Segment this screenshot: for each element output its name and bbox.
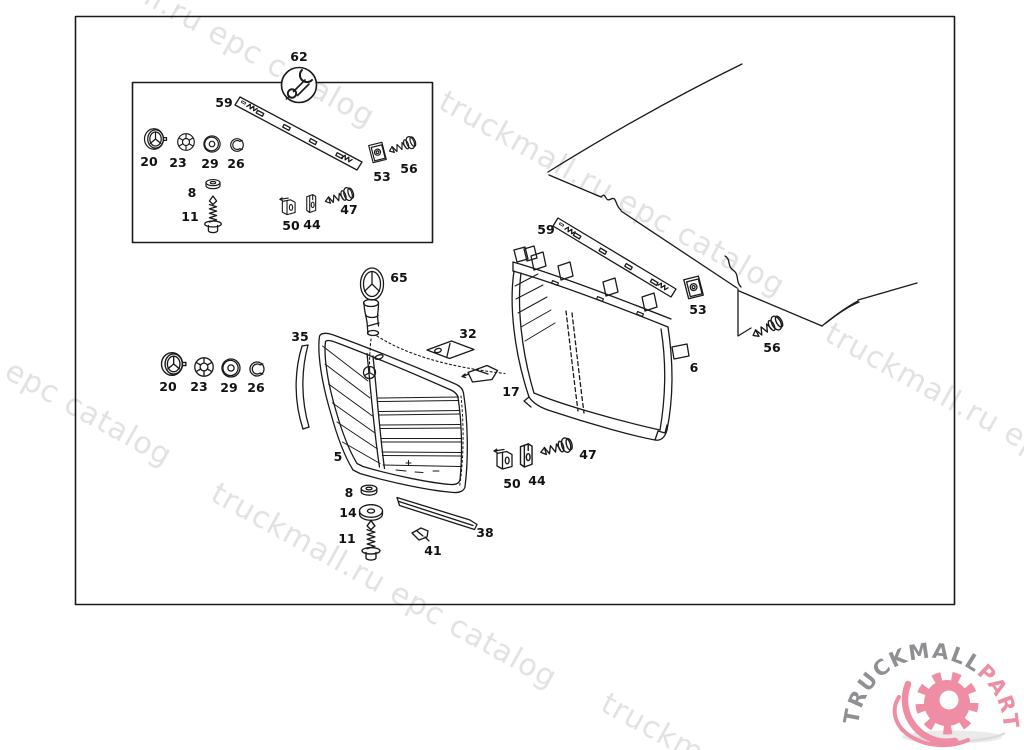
brand-name: TRUCKMALLPARTS	[0, 0, 1023, 731]
brand-name-pink: PARTS	[0, 0, 1023, 731]
brand-logo: TRUCKMALLPARTS	[0, 0, 1024, 750]
catalog-page: truckmall.ru epc catalog truckmall.ru ep…	[0, 0, 1024, 750]
